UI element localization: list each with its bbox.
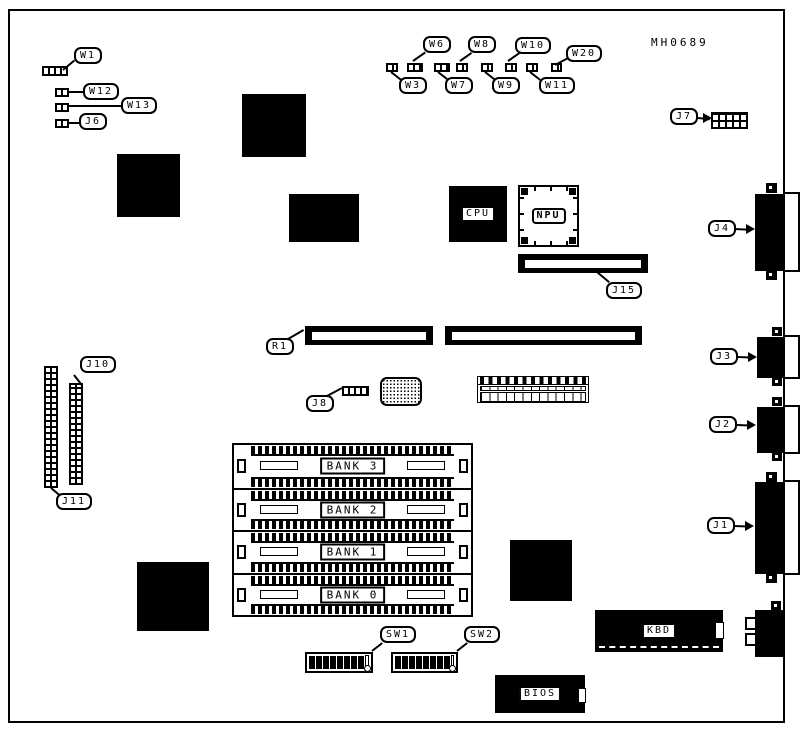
component-pad [380, 377, 422, 406]
bios-label: BIOS [520, 687, 560, 701]
callout-j10: J10 [80, 356, 116, 373]
motherboard-diagram: MH0689 CPU NPU KBD BIOS BANK 3 [0, 0, 804, 731]
simm-latch [459, 503, 468, 517]
memory-bank: BANK 3 [234, 445, 471, 488]
simm-contacts [251, 562, 454, 572]
callout-arrow [747, 420, 756, 430]
simm-latch [237, 459, 246, 473]
simm-contacts [251, 533, 454, 543]
simm-body [260, 590, 298, 599]
callout-sw1: SW1 [380, 626, 416, 643]
din-prong [745, 617, 757, 630]
callout-arrow [746, 224, 755, 234]
chip-notch [715, 622, 724, 639]
mount-tab [766, 183, 777, 193]
multi-pin-connector [477, 376, 589, 403]
dip-switch-sw2 [391, 652, 458, 673]
socket-corner [569, 237, 576, 244]
header-j11 [44, 366, 58, 488]
callout-j8: J8 [306, 395, 334, 412]
switch-open-position [365, 655, 369, 670]
callout-j6: J6 [79, 113, 107, 130]
simm-body [407, 547, 445, 556]
kbd-chip: KBD [595, 610, 723, 652]
callout-w3: W3 [399, 77, 427, 94]
port-shell-j1 [783, 480, 800, 575]
callout-j2: J2 [709, 416, 737, 433]
slot-r1-right [445, 326, 642, 345]
callout-w1: W1 [74, 47, 102, 64]
socket-corner [521, 188, 528, 195]
mount-tab [772, 397, 782, 406]
simm-body [407, 461, 445, 470]
callout-sw2: SW2 [464, 626, 500, 643]
header-j10 [69, 383, 83, 485]
bank-label: BANK 0 [320, 586, 386, 603]
npu-socket: NPU [518, 185, 579, 247]
keyboard-din-port [755, 610, 785, 657]
mount-tab [772, 327, 782, 336]
ic-chip [117, 154, 180, 217]
memory-bank: BANK 1 [234, 530, 471, 573]
mount-tab [766, 573, 777, 583]
callout-j1: J1 [707, 517, 735, 534]
simm-body [407, 505, 445, 514]
bios-chip: BIOS [495, 675, 585, 713]
header-j7 [711, 112, 748, 129]
bank-label: BANK 1 [320, 544, 386, 561]
simm-contacts [251, 604, 454, 614]
callout-r1: R1 [266, 338, 294, 355]
callout-w11: W11 [539, 77, 575, 94]
callout-arrow [745, 521, 754, 531]
simm-body [407, 590, 445, 599]
connector-pins [478, 377, 588, 385]
chip-pin-row [599, 646, 719, 648]
slot-j15 [518, 254, 648, 273]
callout-w7: W7 [445, 77, 473, 94]
port-shell-j2 [783, 405, 800, 454]
ic-chip [510, 540, 572, 601]
bank-label: BANK 3 [320, 458, 386, 475]
jumper-w7 [434, 63, 450, 72]
jumper-j8 [342, 386, 369, 396]
jumper-w9 [481, 63, 493, 72]
callout-j4: J4 [708, 220, 736, 237]
ic-chip [289, 194, 359, 242]
callout-w13: W13 [121, 97, 157, 114]
slot-r1-left [305, 326, 433, 345]
callout-arrow [703, 113, 712, 123]
mount-tab [772, 452, 782, 461]
callout-j11: J11 [56, 493, 92, 510]
part-number: MH0689 [651, 36, 709, 49]
jumper-w8 [456, 63, 468, 72]
mount-tab [772, 377, 782, 386]
mount-tab [766, 472, 777, 482]
simm-body [260, 461, 298, 470]
callout-j7: J7 [670, 108, 698, 125]
cpu-chip: CPU [449, 186, 507, 242]
jumper-w11 [526, 63, 538, 72]
callout-w10: W10 [515, 37, 551, 54]
chip-notch [578, 688, 586, 703]
callout-j3: J3 [710, 348, 738, 365]
simm-latch [237, 588, 246, 602]
memory-bank-block: BANK 3 BANK 2 BANK 1 BANK [232, 443, 473, 617]
callout-w20: W20 [566, 45, 602, 62]
cpu-label: CPU [462, 207, 494, 221]
mount-tab [766, 270, 777, 280]
bank-label: BANK 2 [320, 501, 386, 518]
dip-switch-sw1 [305, 652, 373, 673]
port-shell-j4 [783, 192, 800, 272]
simm-latch [459, 459, 468, 473]
port-shell-j3 [783, 335, 800, 379]
callout-w6: W6 [423, 36, 451, 53]
npu-label: NPU [531, 208, 565, 224]
port-j1 [755, 482, 785, 574]
socket-corner [521, 237, 528, 244]
callout-w9: W9 [492, 77, 520, 94]
simm-contacts [251, 519, 454, 529]
simm-latch [459, 545, 468, 559]
simm-contacts [251, 477, 454, 487]
memory-bank: BANK 0 [234, 573, 471, 616]
din-prong [745, 633, 757, 646]
simm-latch [237, 503, 246, 517]
kbd-label: KBD [643, 624, 675, 638]
simm-contacts [251, 491, 454, 501]
jumper-w10 [505, 63, 517, 72]
callout-tail [67, 105, 123, 107]
callout-w12: W12 [83, 83, 119, 100]
mount-tab [771, 601, 781, 610]
connector-cells [480, 386, 586, 391]
callout-w8: W8 [468, 36, 496, 53]
memory-bank: BANK 2 [234, 488, 471, 531]
socket-corner [569, 188, 576, 195]
simm-latch [237, 545, 246, 559]
jumper-w6 [407, 63, 423, 72]
simm-contacts [251, 576, 454, 586]
connector-cells [480, 392, 586, 402]
port-j3 [757, 337, 785, 378]
simm-contacts [251, 446, 454, 456]
callout-j15: J15 [606, 282, 642, 299]
ic-chip [242, 94, 306, 157]
simm-latch [459, 588, 468, 602]
simm-body [260, 547, 298, 556]
port-j4 [755, 194, 785, 271]
switch-open-position [451, 655, 454, 670]
ic-chip [137, 562, 209, 631]
callout-arrow [748, 352, 757, 362]
port-j2 [757, 407, 785, 453]
simm-body [260, 505, 298, 514]
